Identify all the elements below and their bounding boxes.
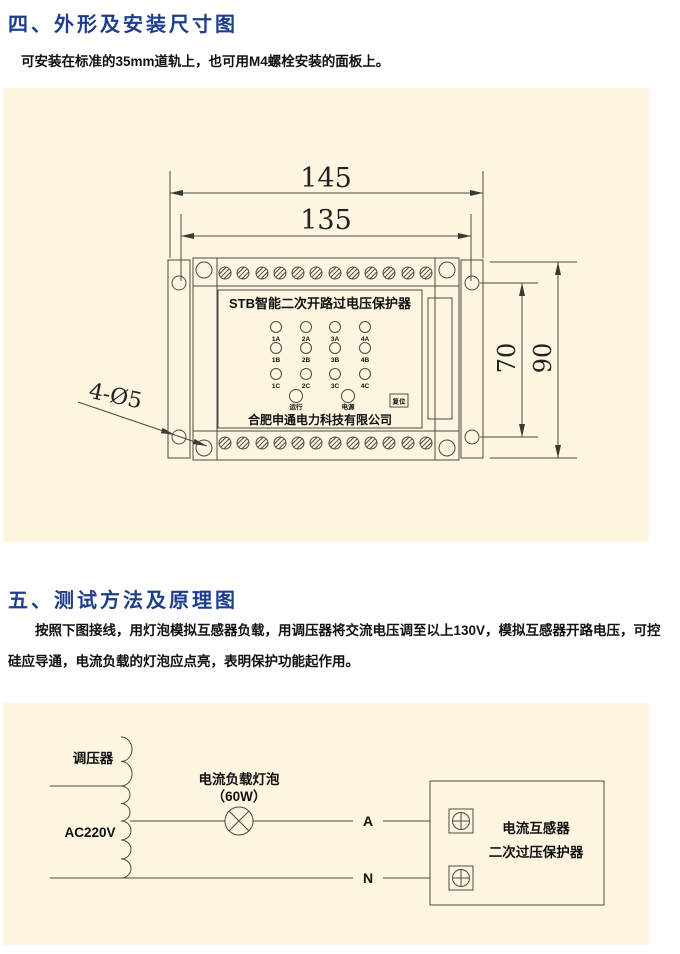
led-label: 2C (302, 383, 311, 390)
phase-label: A (363, 813, 373, 829)
protector-label-line2: 二次过压保护器 (489, 844, 584, 860)
lamp-label-line2: （60W） (212, 789, 267, 804)
mounting-holes-label: 4-Ø5 (87, 379, 144, 415)
dim-height-outer: 90 (529, 343, 557, 374)
led-label: 1A (272, 336, 281, 343)
dim-height-holes: 70 (493, 343, 521, 374)
schematic-svg: 调压器 AC220V 电流负载灯泡 （60W） A N 电流互感器 二次过压保护… (3, 703, 649, 945)
din-rail-latch (428, 298, 452, 419)
led-label: 3C (331, 383, 340, 390)
terminal-screws-top (219, 267, 432, 279)
power-label: 电源 (342, 402, 356, 411)
led-grid (271, 322, 371, 403)
section-outline-heading: 四、外形及安装尺寸图 (8, 8, 238, 37)
terminal-top (449, 809, 473, 833)
dimension-drawing-svg: 145 135 70 90 4-Ø5 (3, 88, 649, 542)
section-outline-body: 可安装在标准的35mm道轨上，也可用M4螺栓安装的面板上。 (21, 46, 671, 77)
led-label: 4B (361, 357, 370, 364)
regulator-label: 调压器 (73, 751, 114, 766)
reset-button: 复位 (390, 394, 408, 407)
led-label: 3B (331, 357, 340, 364)
lamp-label-line1: 电流负载灯泡 (199, 771, 280, 787)
device-title: STB智能二次开路过电压保护器 (229, 296, 412, 311)
protector-box (430, 781, 604, 905)
dimension-panel: 145 135 70 90 4-Ø5 (3, 88, 649, 542)
terminal-bottom (449, 866, 473, 890)
manual-page: { "section_outline": { "heading": "四、外形及… (0, 0, 680, 954)
led-label: 1B (272, 357, 281, 364)
source-label: AC220V (64, 825, 115, 840)
run-label: 运行 (290, 402, 304, 411)
led-labels: 1A 2A 3A 4A 1B 2B 3B 4B 1C 2C 3C 4C 运行 电… (272, 336, 370, 411)
section-test-heading: 五、测试方法及原理图 (8, 584, 238, 613)
led-label: 1C (272, 383, 281, 390)
company-name: 合肥申通电力科技有限公司 (248, 412, 392, 427)
reset-label: 复位 (392, 397, 407, 406)
circuit-labels: 调压器 AC220V 电流负载灯泡 （60W） A N 电流互感器 二次过压保护… (64, 751, 583, 886)
led-label: 4C (361, 383, 370, 390)
protector-label-line1: 电流互感器 (502, 820, 570, 836)
dim-width-outer: 145 (300, 163, 352, 194)
lamp-symbol (225, 807, 253, 835)
neutral-label: N (363, 870, 373, 886)
section-test-body: 按照下图接线，用灯泡模拟互感器负载，用调压器将交流电压调至以上130V，模拟互感… (8, 615, 670, 677)
regulator-coil (121, 737, 132, 878)
run-led (290, 390, 303, 403)
led-label: 3A (331, 336, 340, 343)
power-led (342, 390, 355, 403)
schematic-panel: 调压器 AC220V 电流负载灯泡 （60W） A N 电流互感器 二次过压保护… (3, 703, 649, 945)
led-label: 2B (302, 357, 311, 364)
dim-width-holes: 135 (300, 205, 352, 236)
terminal-screws-bottom (219, 437, 432, 449)
led-label: 2A (302, 336, 311, 343)
device-outline (168, 258, 483, 460)
led-label: 4A (361, 336, 370, 343)
